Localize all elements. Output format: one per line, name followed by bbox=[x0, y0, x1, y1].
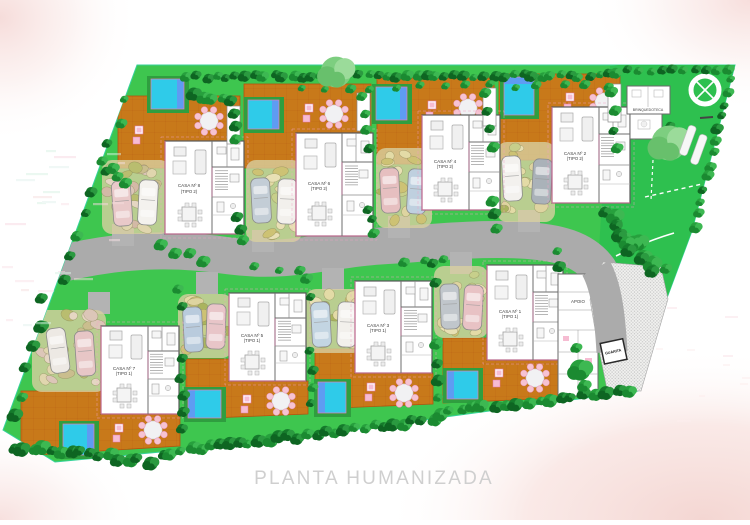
svg-text:BRINQUEDOTECA: BRINQUEDOTECA bbox=[633, 108, 664, 112]
svg-text:(TIPO 1): (TIPO 1) bbox=[370, 328, 387, 333]
svg-text:PLANTA HUMANIZADA: PLANTA HUMANIZADA bbox=[254, 468, 494, 489]
svg-text:(TIPO 1): (TIPO 1) bbox=[502, 314, 519, 319]
svg-text:(TIPO 2): (TIPO 2) bbox=[437, 164, 454, 169]
svg-text:(TIPO 2): (TIPO 2) bbox=[567, 156, 584, 161]
svg-text:(TIPO 2): (TIPO 2) bbox=[311, 186, 328, 191]
svg-text:CASA Nº 8: CASA Nº 8 bbox=[178, 183, 201, 188]
svg-text:(TIPO 2): (TIPO 2) bbox=[181, 189, 198, 194]
svg-text:(TIPO 1): (TIPO 1) bbox=[116, 371, 133, 376]
svg-text:APOIO: APOIO bbox=[571, 299, 585, 304]
svg-text:(TIPO 1): (TIPO 1) bbox=[244, 338, 261, 343]
